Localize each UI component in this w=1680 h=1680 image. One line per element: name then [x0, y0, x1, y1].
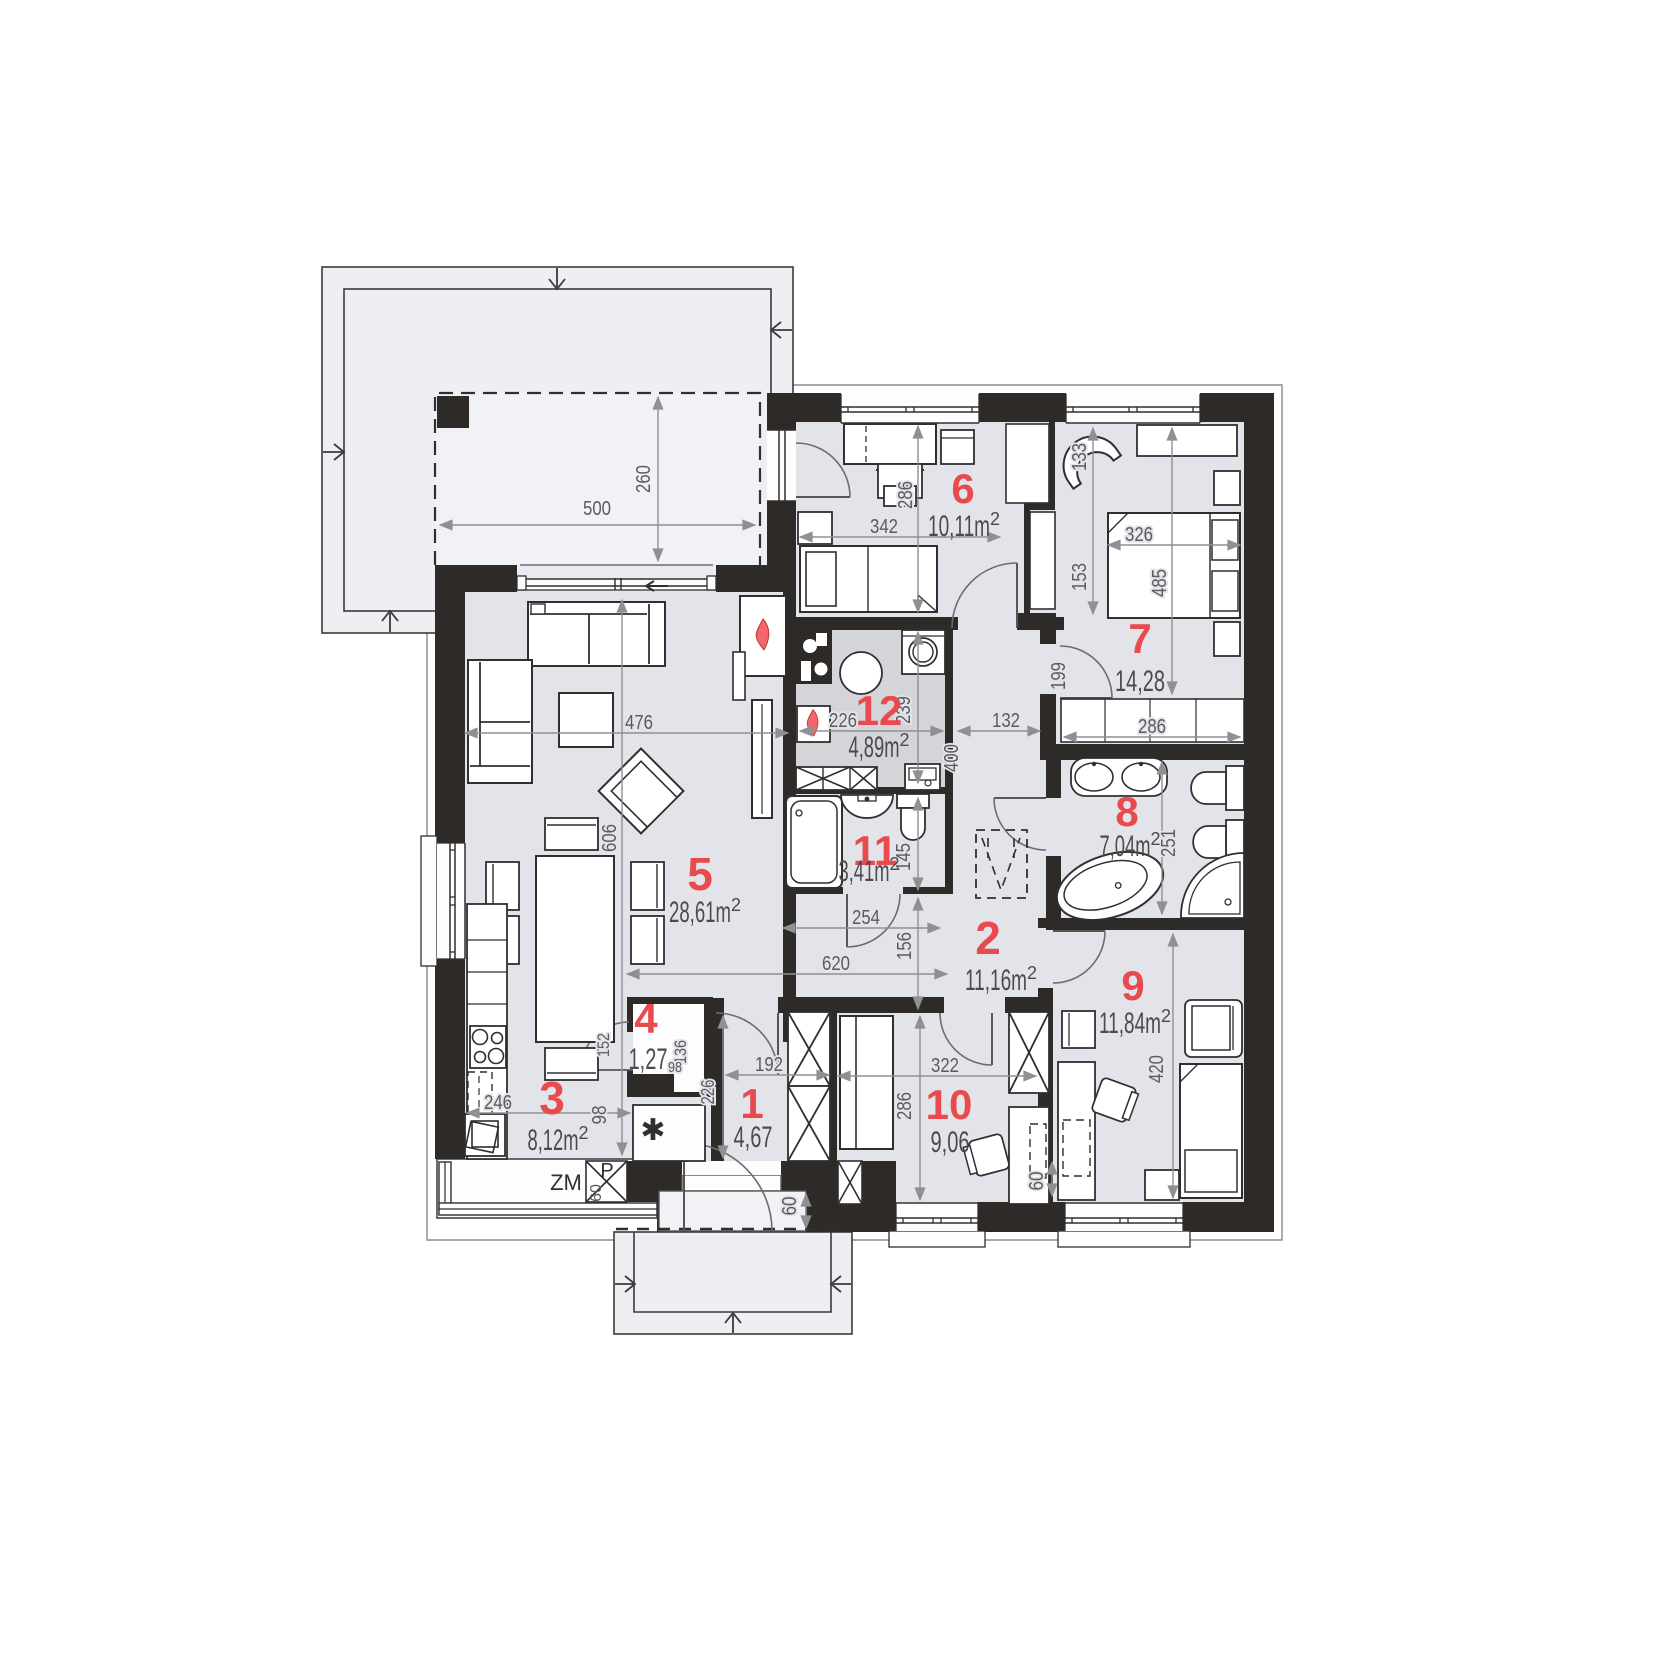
svg-text:246: 246 — [484, 1092, 512, 1114]
svg-text:476: 476 — [625, 712, 653, 734]
svg-text:420: 420 — [1146, 1055, 1168, 1083]
svg-text:9,06: 9,06 — [931, 1126, 970, 1159]
svg-text:2: 2 — [1151, 829, 1161, 849]
svg-text:2: 2 — [731, 895, 741, 915]
svg-text:14,28: 14,28 — [1115, 665, 1165, 698]
svg-text:2: 2 — [579, 1123, 589, 1143]
svg-text:8: 8 — [1115, 788, 1138, 835]
svg-text:2: 2 — [1161, 1006, 1171, 1026]
svg-text:156: 156 — [894, 932, 916, 960]
svg-text:342: 342 — [870, 516, 898, 538]
svg-text:606: 606 — [599, 824, 621, 852]
svg-text:8,12m: 8,12m — [528, 1124, 579, 1157]
svg-text:10: 10 — [926, 1081, 973, 1128]
svg-text:4,67: 4,67 — [734, 1121, 773, 1154]
svg-text:133: 133 — [1069, 443, 1091, 471]
svg-text:3: 3 — [539, 1072, 565, 1124]
svg-text:7,04m: 7,04m — [1100, 830, 1151, 863]
svg-text:199: 199 — [1048, 662, 1070, 690]
svg-text:2: 2 — [990, 509, 1000, 529]
svg-text:4: 4 — [634, 995, 658, 1042]
svg-text:60: 60 — [1026, 1172, 1048, 1191]
svg-text:2: 2 — [1027, 963, 1037, 983]
svg-text:226: 226 — [829, 710, 857, 732]
svg-text:98: 98 — [589, 1106, 611, 1125]
svg-text:226: 226 — [698, 1080, 718, 1105]
svg-text:286: 286 — [894, 1092, 916, 1120]
svg-text:1,27: 1,27 — [629, 1043, 668, 1076]
svg-text:10,11m: 10,11m — [928, 510, 990, 543]
svg-text:1: 1 — [740, 1080, 763, 1127]
svg-text:485: 485 — [1149, 569, 1171, 597]
svg-text:132: 132 — [992, 710, 1020, 732]
svg-text:28,61m: 28,61m — [669, 896, 731, 929]
svg-text:3,41m: 3,41m — [839, 855, 890, 888]
svg-text:12: 12 — [856, 687, 903, 734]
svg-text:5: 5 — [687, 848, 713, 900]
svg-text:P: P — [600, 1160, 613, 1182]
svg-text:286: 286 — [1138, 716, 1166, 738]
svg-text:4,89m: 4,89m — [849, 731, 900, 764]
svg-text:98: 98 — [668, 1059, 682, 1076]
svg-text:192: 192 — [755, 1054, 783, 1076]
svg-text:2: 2 — [890, 854, 900, 874]
svg-text:60: 60 — [588, 1184, 605, 1202]
svg-text:326: 326 — [1125, 524, 1153, 546]
svg-text:2: 2 — [900, 730, 910, 750]
svg-text:ZM: ZM — [550, 1170, 582, 1195]
svg-text:60: 60 — [779, 1197, 801, 1216]
svg-text:11,84m: 11,84m — [1099, 1007, 1161, 1040]
svg-text:620: 620 — [822, 953, 850, 975]
svg-text:9: 9 — [1121, 962, 1144, 1009]
svg-text:7: 7 — [1128, 615, 1151, 662]
svg-text:286: 286 — [895, 481, 917, 509]
svg-text:500: 500 — [583, 498, 611, 520]
svg-text:254: 254 — [852, 907, 880, 929]
svg-text:11,16m: 11,16m — [965, 964, 1027, 997]
svg-text:6: 6 — [951, 465, 974, 512]
svg-text:153: 153 — [1069, 563, 1091, 591]
svg-text:260: 260 — [633, 465, 655, 493]
svg-text:400: 400 — [941, 744, 963, 772]
svg-text:251: 251 — [1158, 829, 1180, 857]
svg-text:2: 2 — [975, 912, 1001, 964]
svg-text:✱: ✱ — [640, 1114, 665, 1147]
svg-text:322: 322 — [931, 1055, 959, 1077]
svg-text:152: 152 — [594, 1033, 613, 1057]
